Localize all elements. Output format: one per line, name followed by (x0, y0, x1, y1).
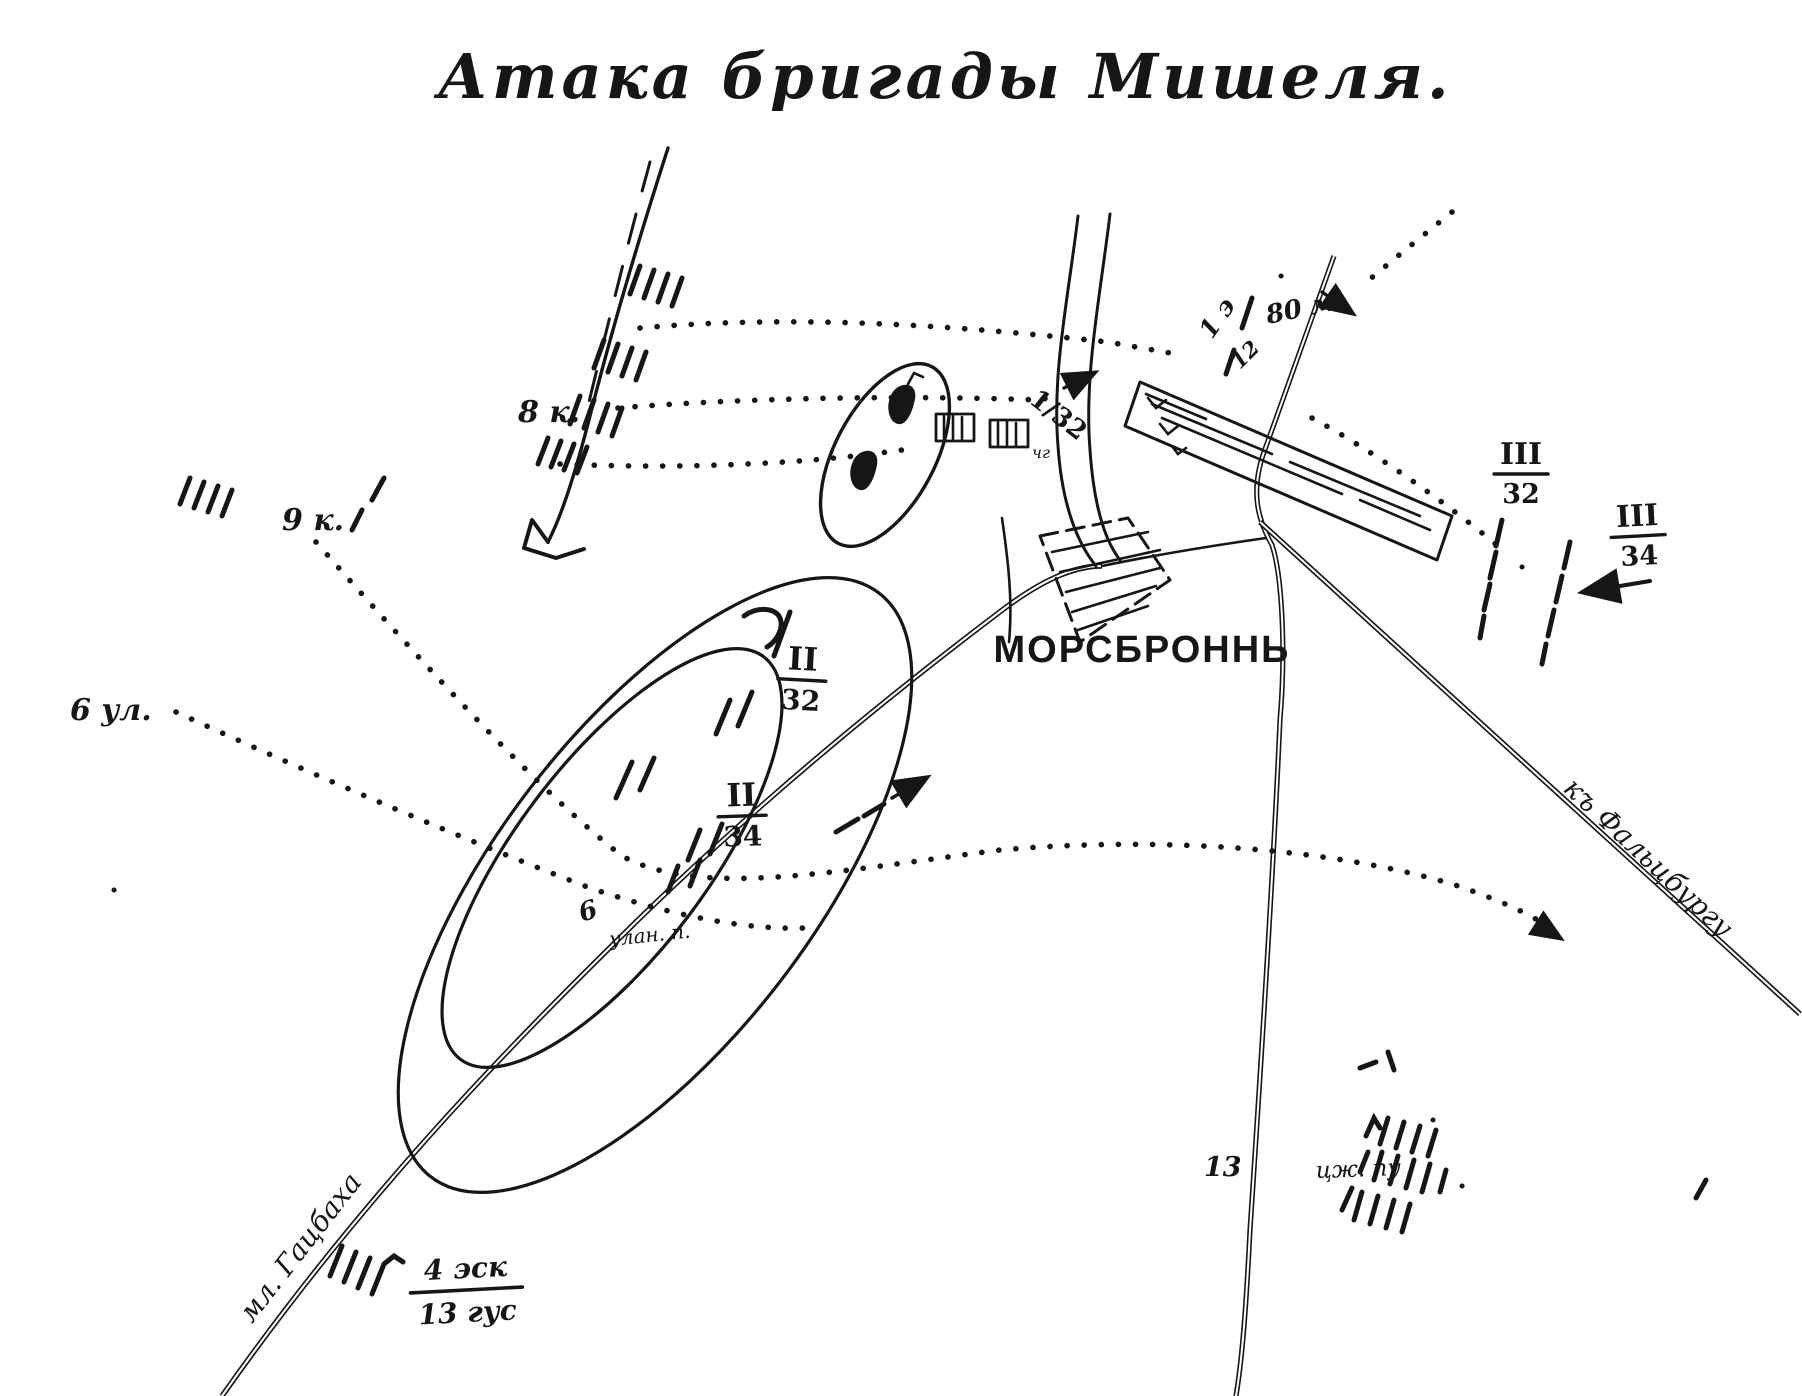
label-regiment-6ul: 6 ул. (70, 693, 152, 728)
label-battalion-II-32: II 32 (776, 639, 828, 718)
label-regiment-8k: 8 к. (517, 395, 580, 430)
squadron-slash-pair-1 (716, 692, 752, 734)
label-road-phalsbourg: къ Фальцбургу (1557, 771, 1740, 945)
svg-text:III: III (1615, 498, 1659, 535)
label-echelon-1: 1 э (1193, 292, 1241, 343)
stream-north (1057, 214, 1120, 566)
dotted-line-northeast (1362, 212, 1452, 286)
pursuit-arrow-northeast (892, 778, 926, 798)
infantry-row-1 (1366, 1118, 1436, 1156)
label-infantry-13-script: цж. пу (1315, 1155, 1401, 1184)
road-north-south (1236, 256, 1334, 1396)
arrow-left-III34 (1584, 581, 1650, 592)
svg-text:13 гус: 13 гус (418, 1293, 518, 1331)
svg-text:34: 34 (1620, 540, 1659, 573)
dotted-line-9k-pursuit (316, 542, 1550, 928)
label-road-hatzbach: мл. Гацбаха (232, 1166, 369, 1328)
unit-hatch-9k (180, 478, 232, 516)
label-lancers-road-script: улан. п. (607, 919, 691, 951)
label-battalion-III-34: III 34 (1609, 498, 1667, 574)
label-village-house-mark: чг (1032, 443, 1050, 462)
label-regiment-9k: 9 к. (282, 503, 344, 538)
map-page: Атака бригады Мишеля. (0, 0, 1802, 1396)
label-regiment-80m: 80 м (1262, 287, 1338, 331)
road-village-connector (1102, 538, 1266, 566)
road-main-morsbronn (222, 566, 1102, 1396)
dotted-line-lower (560, 450, 902, 466)
label-lancers-road-number: 6 (575, 895, 601, 929)
squadron-markers (850, 373, 923, 490)
svg-text:II: II (787, 639, 819, 679)
label-battalion-III-32: III 32 (1494, 437, 1548, 510)
label-squadrons-4-13: 4 эск 13 гус (409, 1249, 525, 1332)
squadron-slash-road (616, 758, 654, 798)
unit-dashes-9k (352, 478, 384, 530)
dotted-line-6ul (176, 712, 806, 928)
svg-text:III: III (1500, 437, 1542, 472)
contour-inner-loop (384, 599, 841, 1117)
label-battalion-II-34: II 34 (717, 775, 768, 854)
cavalry-column-dashes-2 (1542, 542, 1570, 664)
battle-map: Атака бригады Мишеля. (0, 0, 1802, 1396)
label-echelon-12: 12 (1226, 335, 1264, 373)
svg-text:32: 32 (1502, 479, 1540, 510)
label-infantry-13: 13 (1204, 1152, 1242, 1183)
svg-text:34: 34 (723, 819, 763, 853)
svg-text:4 эск: 4 эск (423, 1250, 509, 1287)
map-title: Атака бригады Мишеля. (433, 40, 1452, 113)
dotted-line-middle (618, 392, 1058, 408)
unit-hatch-road-southwest (330, 1246, 403, 1294)
cavalry-column-dashes-1 (1480, 520, 1502, 638)
svg-text:II: II (726, 775, 757, 814)
label-village-morsbronn: МОРСБРОННЬ (994, 629, 1291, 671)
svg-text:32: 32 (780, 683, 821, 718)
unit-hatch-ridge-1 (630, 266, 682, 306)
stream-village (1002, 518, 1010, 642)
infantry-row-3 (1342, 1188, 1410, 1232)
